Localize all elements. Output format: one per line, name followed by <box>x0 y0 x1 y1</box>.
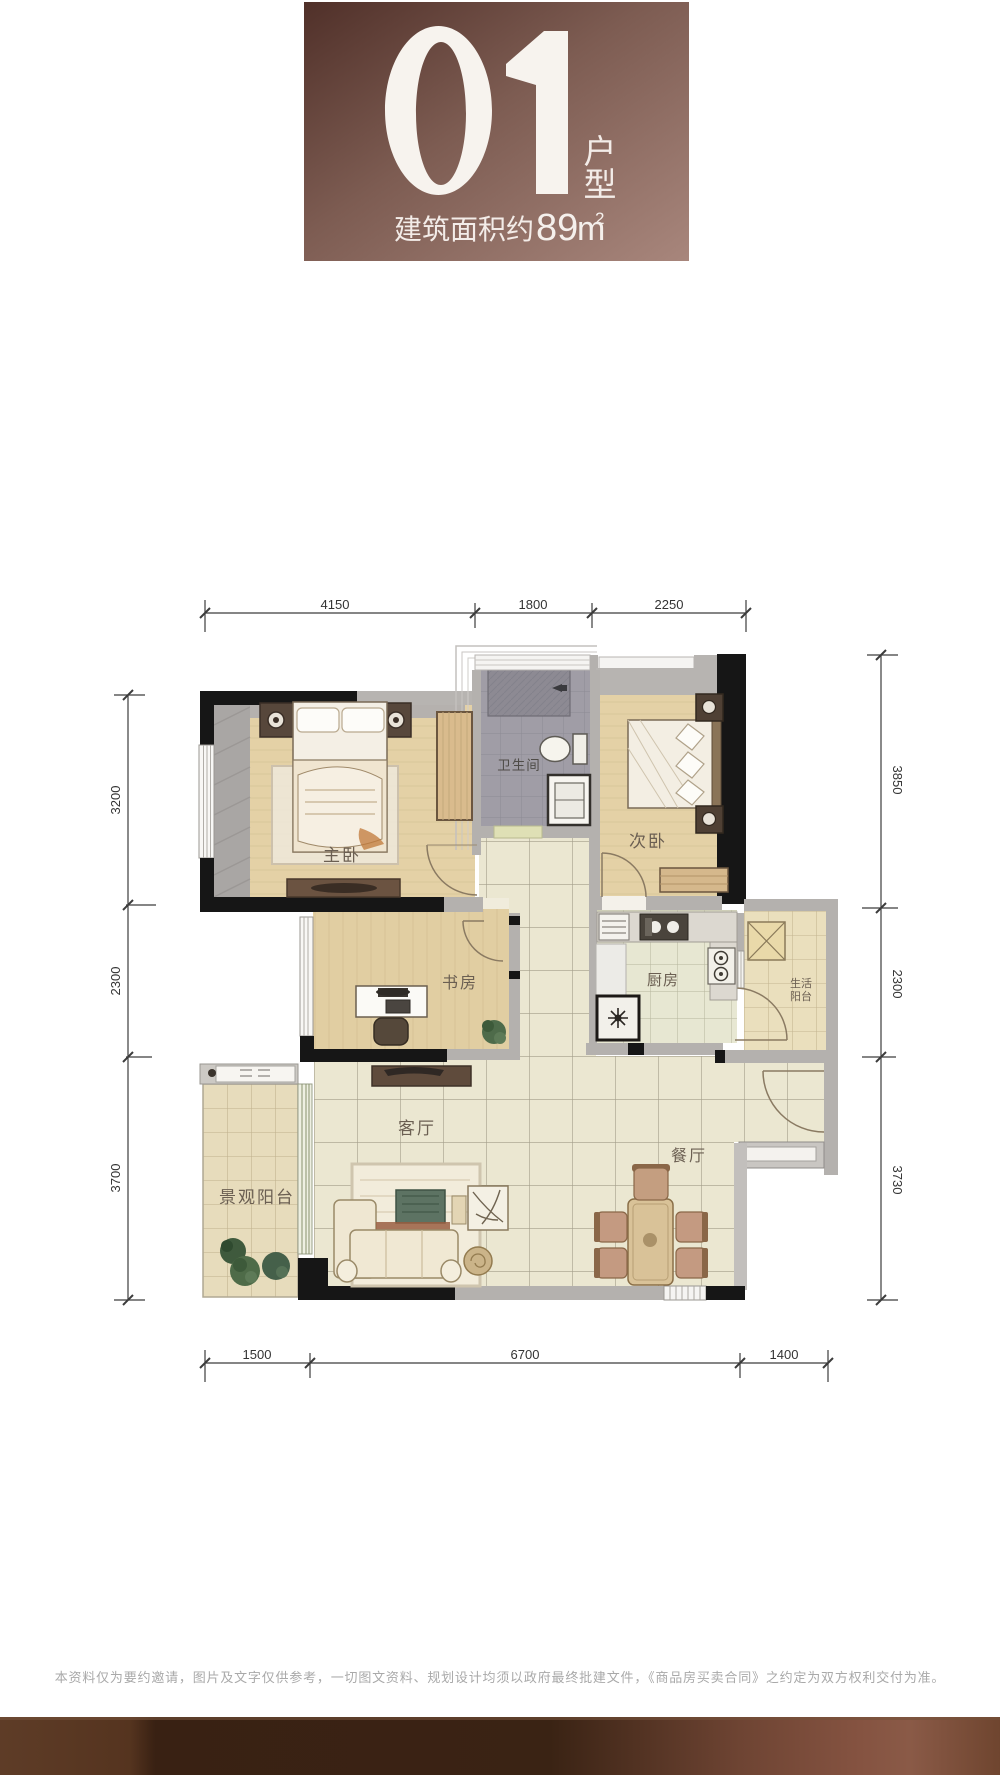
svg-text:6700: 6700 <box>511 1347 540 1362</box>
svg-text:户: 户 <box>584 133 617 170</box>
svg-text:1400: 1400 <box>770 1347 799 1362</box>
svg-text:建筑面积约: 建筑面积约 <box>394 214 534 245</box>
svg-text:景观阳台: 景观阳台 <box>219 1188 295 1207</box>
svg-text:1500: 1500 <box>243 1347 272 1362</box>
svg-text:阳台: 阳台 <box>790 989 812 1003</box>
svg-text:3200: 3200 <box>108 786 123 815</box>
svg-text:厨房: 厨房 <box>647 972 679 989</box>
svg-text:次卧: 次卧 <box>629 832 667 851</box>
svg-text:主卧: 主卧 <box>323 846 361 865</box>
svg-text:客厅: 客厅 <box>398 1119 436 1138</box>
svg-text:3700: 3700 <box>108 1164 123 1193</box>
svg-text:本资料仅为要约邀请，图片及文字仅供参考，一切图文资料、规划设: 本资料仅为要约邀请，图片及文字仅供参考，一切图文资料、规划设计均须以政府最终批建… <box>55 1670 946 1685</box>
svg-text:型: 型 <box>584 166 617 203</box>
svg-text:1800: 1800 <box>519 597 548 612</box>
svg-text:餐厅: 餐厅 <box>671 1147 707 1165</box>
svg-text:2300: 2300 <box>890 970 905 999</box>
svg-text:89: 89 <box>536 207 578 249</box>
svg-text:2250: 2250 <box>655 597 684 612</box>
svg-text:2300: 2300 <box>108 967 123 996</box>
svg-text:3730: 3730 <box>890 1166 905 1195</box>
svg-text:2: 2 <box>595 209 604 228</box>
svg-text:卫生间: 卫生间 <box>497 758 541 773</box>
svg-text:3850: 3850 <box>890 766 905 795</box>
svg-text:生活: 生活 <box>790 976 812 990</box>
svg-text:4150: 4150 <box>321 597 350 612</box>
svg-text:书房: 书房 <box>442 974 478 992</box>
